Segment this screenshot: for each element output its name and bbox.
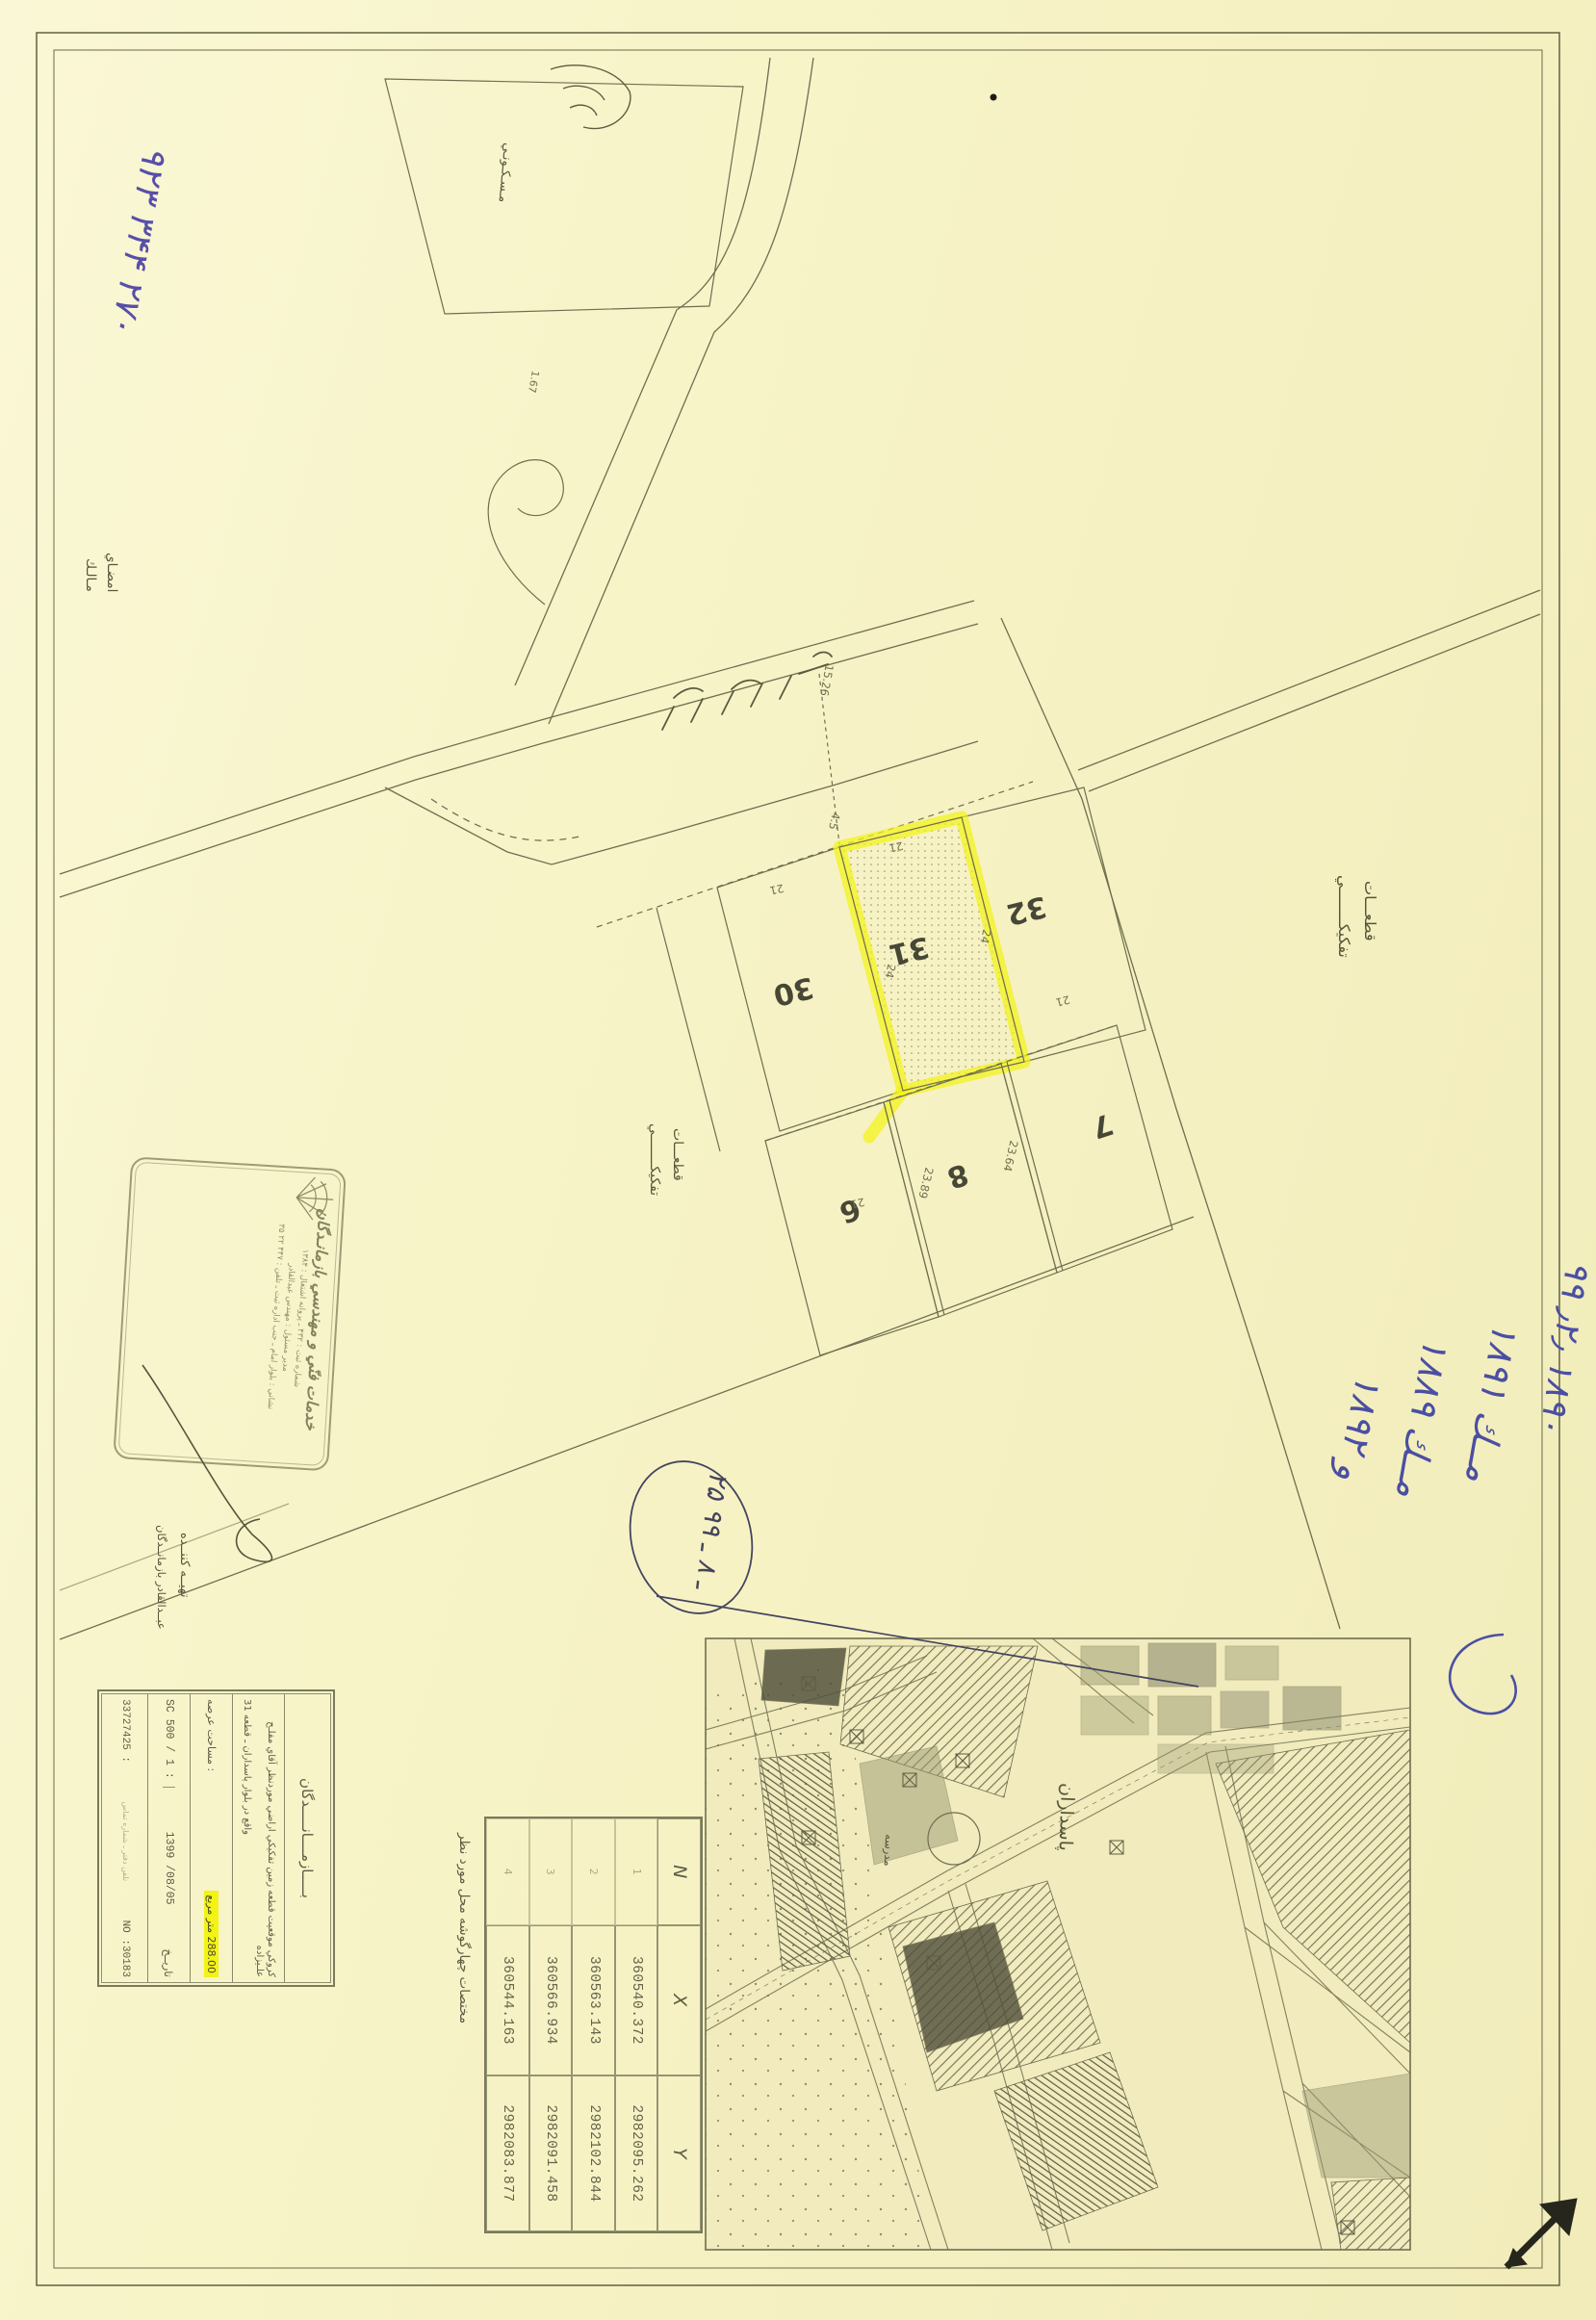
dim-label: 15.26 xyxy=(817,663,837,697)
inset-street-label: پاسداران xyxy=(1055,1783,1078,1851)
coord-header-n: N xyxy=(657,1818,701,1925)
dim-label: 1.67 xyxy=(526,370,541,394)
office-phone: 33727425 : xyxy=(120,1699,132,1763)
sheet-number: NO :30183 xyxy=(120,1920,132,1977)
coord-row-n: 2 xyxy=(572,1818,615,1925)
subdivision-label-center: قطعـــات تفكيكــــــــي xyxy=(647,1123,685,1196)
coord-row-n: 3 xyxy=(529,1818,573,1925)
small-note: تلفن دفتر ـ شماره تماس xyxy=(121,1801,130,1881)
subdivision-label-line: قطعـــات xyxy=(670,1128,685,1181)
dim-label: 23.64 xyxy=(1000,1139,1020,1173)
coord-row-y: 2982083.877 xyxy=(486,2075,529,2231)
coord-header-y: Y xyxy=(657,2075,701,2231)
dim-label: 23.89 xyxy=(915,1166,936,1199)
inset-school-label: مدرسه xyxy=(881,1834,896,1867)
inset-city-map: پاسداران مدرسه xyxy=(706,1638,1410,2250)
top-sketch-marks xyxy=(551,65,631,129)
area-label: مساحت عرصه : xyxy=(205,1699,218,1771)
dim-label: 21 xyxy=(1054,992,1071,1009)
parcel-label-32: 32 xyxy=(1003,889,1050,931)
date-label: تاريــخ xyxy=(163,1948,176,1977)
subdivision-label-right: قطعـــات تفكيكــــــــي xyxy=(1334,875,1379,958)
subdivision-label-line: تفكيكــــــــي xyxy=(647,1123,662,1196)
scale-value: SC 500 / 1 : xyxy=(163,1699,175,1788)
coord-row-n: 1 xyxy=(615,1818,658,1925)
date-value: 1399 /08/05 xyxy=(163,1832,175,1905)
coord-row-y: 2982102.844 xyxy=(572,2075,615,2231)
owner-signature-line: مـالـك xyxy=(83,558,98,592)
parcel-label-30: 30 xyxy=(770,969,817,1012)
parcel-label-7: 7 xyxy=(1088,1106,1118,1145)
coord-row-x: 360544.163 xyxy=(486,1925,529,2075)
coord-row-x: 360540.372 xyxy=(615,1925,658,2075)
dim-label: 21 xyxy=(768,881,785,897)
subdivision-label-line: قطعـــات xyxy=(1361,881,1379,941)
dimension-labels: 21 21 4.5 24 24 21 21 15.26 23.89 23.64 … xyxy=(526,370,1071,1211)
info-description-line1: كروكي موقعيت قطعه زمين تفكيكي اراضي مورد… xyxy=(252,1699,276,1977)
parcel-label-8: 8 xyxy=(943,1156,973,1195)
parcel-31-highlight xyxy=(839,817,1024,1137)
dim-label: 4.5 xyxy=(826,811,843,831)
coord-table-caption: مختصات چهارگوشه محل مورد نظر xyxy=(456,1833,472,2024)
prepared-by-line: تهيــه كننــده xyxy=(177,1533,192,1598)
residential-label: مـسـكـونـي xyxy=(496,142,515,203)
scan-speck xyxy=(991,94,997,101)
owner-signature-line: امضـاي xyxy=(104,553,119,592)
coord-row-y: 2982091.458 xyxy=(529,2075,573,2231)
area-value-highlighted: 288.00 متر مربع xyxy=(204,1891,219,1977)
coord-row-y: 2982095.262 xyxy=(615,2075,658,2231)
scanned-survey-document: 30 31 32 6 8 7 21 21 4.5 24 24 21 21 15.… xyxy=(0,0,1596,2320)
subdivision-label-line: تفكيكــــــــي xyxy=(1334,875,1353,958)
residential-parcel-outline xyxy=(385,79,743,314)
prepared-by-label: تهيــه كننــده عبــدالقادر بازمانــدگان xyxy=(154,1525,192,1630)
owner-signature-label: امضـاي مـالـك xyxy=(83,553,119,592)
coord-row-x: 360563.143 xyxy=(572,1925,615,2075)
coord-header-x: X xyxy=(657,1925,701,2075)
info-header: بـــــازمــــانـــــدگان xyxy=(299,1778,317,1898)
coord-row-n: 4 xyxy=(486,1818,529,1925)
coord-row-x: 360566.934 xyxy=(529,1925,573,2075)
road-loop-curve xyxy=(488,460,563,605)
info-description-line2: واقع در بلوار پاسداران ـ قطعه 31 xyxy=(241,1699,253,1835)
prepared-by-line: عبــدالقادر بازمانــدگان xyxy=(154,1525,168,1630)
